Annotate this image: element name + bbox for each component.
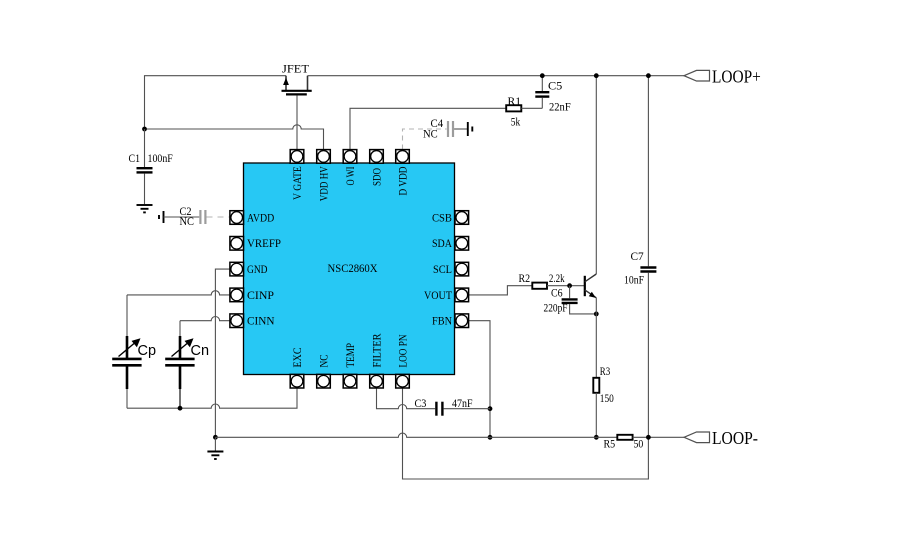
svg-text:150: 150 [600,393,614,405]
svg-text:NC: NC [180,216,195,228]
svg-text:2.2k: 2.2k [549,273,565,285]
svg-text:C3: C3 [415,398,427,410]
svg-text:50: 50 [634,438,644,450]
svg-text:C5: C5 [548,81,563,93]
svg-text:Cn: Cn [191,343,210,359]
svg-text:LOOP-: LOOP- [712,428,758,448]
svg-text:NC: NC [423,128,438,140]
svg-text:CINN: CINN [247,316,275,328]
svg-text:D VDD: D VDD [397,167,409,196]
svg-text:47nF: 47nF [452,398,473,410]
svg-text:Cp: Cp [138,343,157,359]
svg-text:C1: C1 [129,153,141,165]
svg-text:AVDD: AVDD [247,212,274,224]
svg-text:VREFP: VREFP [247,238,281,250]
svg-text:LOOP+: LOOP+ [712,66,761,86]
svg-text:V GATE: V GATE [292,166,304,200]
svg-text:R1: R1 [508,96,522,108]
svg-text:R5: R5 [604,438,616,450]
svg-text:C6: C6 [551,288,563,300]
svg-text:FILTER: FILTER [371,333,383,367]
svg-text:5k: 5k [511,116,521,128]
svg-text:R2: R2 [519,273,531,285]
svg-text:FBN: FBN [432,316,453,328]
svg-text:SDO: SDO [371,168,383,186]
svg-text:C7: C7 [631,251,644,263]
svg-text:GND: GND [247,264,268,276]
svg-text:VOUT: VOUT [424,290,452,302]
svg-text:O WI: O WI [345,166,357,185]
svg-text:SDA: SDA [432,238,453,250]
svg-text:220pF: 220pF [544,303,568,315]
svg-text:VDD HV: VDD HV [318,166,330,202]
svg-text:R3: R3 [600,366,611,378]
svg-text:CINP: CINP [247,290,274,302]
svg-text:NC: NC [318,354,330,367]
svg-text:CSB: CSB [432,212,452,224]
svg-text:SCL: SCL [433,264,452,276]
svg-text:10nF: 10nF [624,274,644,286]
svg-text:NSC2860X: NSC2860X [328,263,379,275]
svg-text:EXC: EXC [292,347,304,367]
svg-text:100nF: 100nF [148,153,173,165]
svg-text:LOO PN: LOO PN [397,334,409,368]
svg-text:JFET: JFET [282,64,309,76]
svg-text:22nF: 22nF [549,101,571,113]
svg-text:TEMP: TEMP [345,343,357,368]
